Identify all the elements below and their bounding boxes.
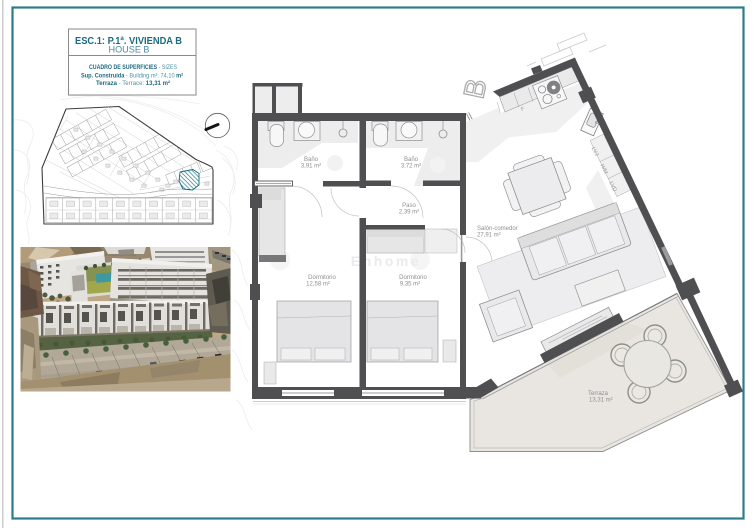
- svg-text:CUADRO DE SUPERFICIES - SIZES: CUADRO DE SUPERFICIES - SIZES: [89, 64, 177, 71]
- svg-text:Dormitorio: Dormitorio: [308, 275, 336, 281]
- svg-text:Dormitorio: Dormitorio: [399, 275, 427, 281]
- svg-text:13,31 m²: 13,31 m²: [589, 398, 613, 404]
- svg-text:9,35 m²: 9,35 m²: [400, 282, 420, 288]
- svg-text:Paso: Paso: [402, 203, 416, 209]
- svg-text:Sup. Construida - Building m²:: Sup. Construida - Building m²: 74,10 m²: [81, 73, 183, 80]
- svg-text:Terraza: Terraza: [588, 391, 609, 397]
- svg-text:3,91 m²: 3,91 m²: [301, 164, 321, 170]
- svg-text:Baño: Baño: [304, 157, 319, 163]
- svg-text:3,72 m²: 3,72 m²: [401, 164, 421, 170]
- svg-text:2,39 m²: 2,39 m²: [399, 210, 419, 216]
- svg-text:27,91 m²: 27,91 m²: [477, 233, 501, 239]
- svg-text:HOUSE B: HOUSE B: [109, 45, 150, 56]
- svg-text:Salón-comedor: Salón-comedor: [477, 226, 518, 232]
- svg-text:12,58 m²: 12,58 m²: [306, 282, 330, 288]
- svg-text:Baño: Baño: [404, 157, 419, 163]
- svg-text:Terraza - Terrace: 13,31 m²: Terraza - Terrace: 13,31 m²: [96, 80, 170, 87]
